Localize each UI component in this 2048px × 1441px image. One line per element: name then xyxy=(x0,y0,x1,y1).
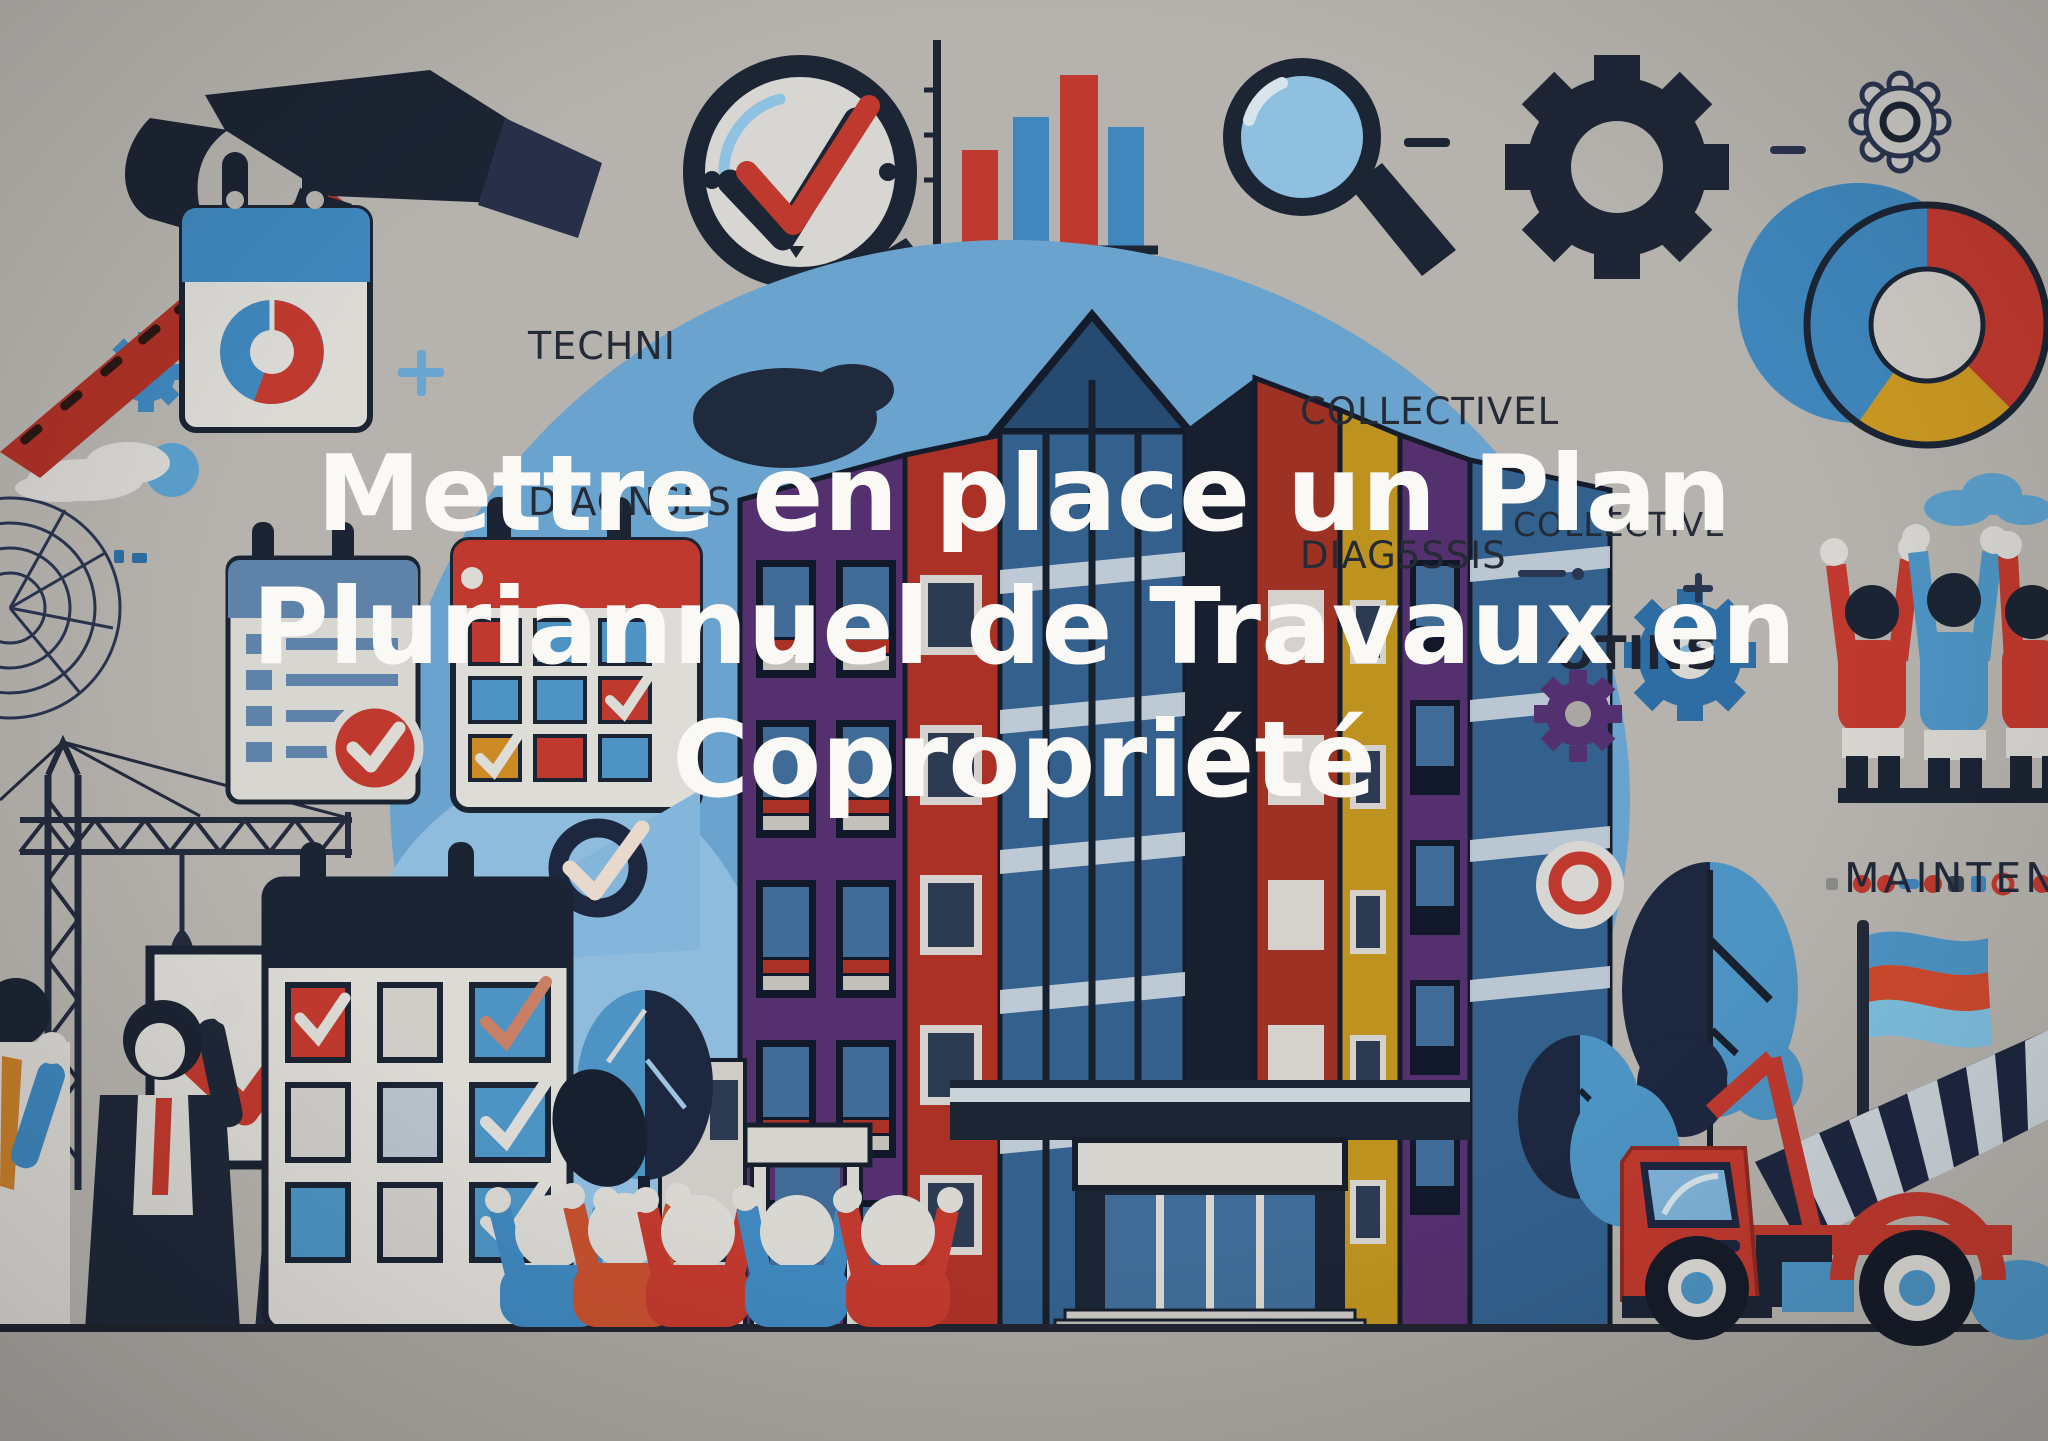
big-gear-icon xyxy=(1505,55,1729,279)
checklist-calendar-icon xyxy=(265,842,570,1330)
title-line-3: Copropriété xyxy=(0,694,2048,827)
ground-line xyxy=(0,1324,2048,1332)
illustration-banner: TECHNI DIAGNSES COLLECTIVEL DIAG5SSIS CO… xyxy=(0,0,2048,1441)
title-line-2: Pluriannuel de Travaux en xyxy=(0,561,2048,694)
title-line-1: Mettre en place un Plan xyxy=(0,428,2048,561)
label-line: TECHNI xyxy=(528,320,732,372)
ground xyxy=(0,1332,2048,1441)
target-ring-icon xyxy=(1536,841,1624,929)
dash-mark xyxy=(1770,146,1806,154)
entrance xyxy=(1055,1140,1365,1330)
outline-gear-icon xyxy=(1851,73,1949,171)
page-title: Mettre en place un Plan Pluriannuel de T… xyxy=(0,428,2048,827)
